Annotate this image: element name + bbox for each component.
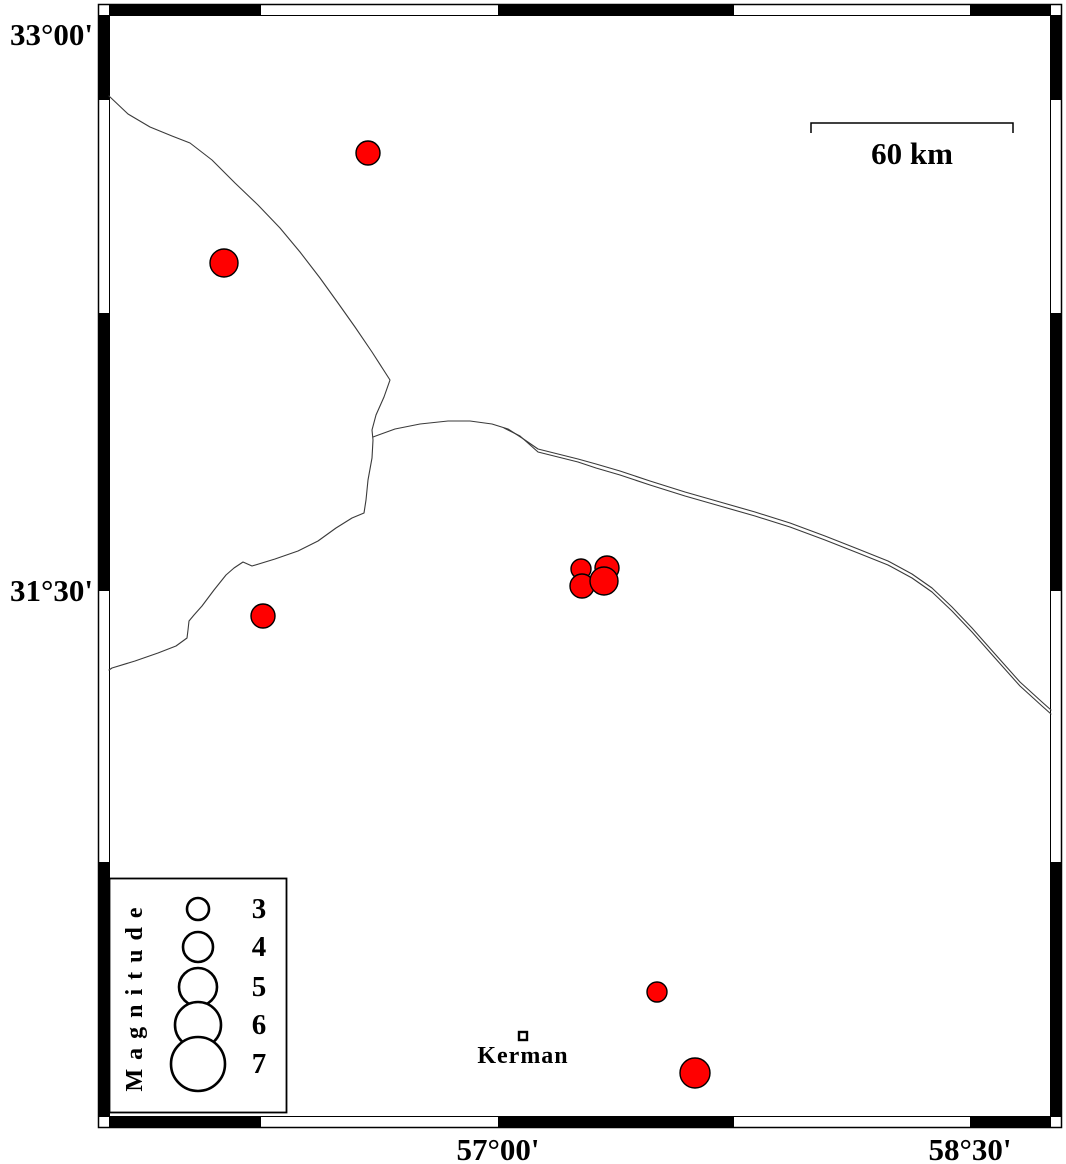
seismicity-map: 33°00' 31°30' 57°00' 58°30' 60 km Kerman… xyxy=(0,0,1066,1164)
scale-bar-label: 60 km xyxy=(812,136,1012,172)
legend-value-3: 3 xyxy=(238,890,280,928)
border-line xyxy=(109,96,390,670)
legend-value-7: 7 xyxy=(238,1045,280,1083)
legend-magnitude-circle xyxy=(171,1037,225,1091)
lat-tick-label-31-30: 31°30' xyxy=(0,570,93,612)
lon-tick-label-58-30: 58°30' xyxy=(890,1129,1050,1164)
legend-magnitude-circle xyxy=(183,932,213,962)
scale-bar xyxy=(811,123,1013,133)
epicenter-marker xyxy=(210,249,238,277)
legend-title: Magnitude xyxy=(122,880,158,1110)
geographic-lines xyxy=(109,96,1051,714)
epicenter-marker xyxy=(251,604,275,628)
fault-line-main xyxy=(373,421,1051,710)
legend-value-4: 4 xyxy=(238,928,280,966)
epicenter-marker xyxy=(647,982,667,1002)
legend-magnitude-circle xyxy=(179,968,217,1006)
map-canvas xyxy=(0,0,1066,1164)
epicenter-marker xyxy=(356,141,380,165)
lat-tick-label-33-00: 33°00' xyxy=(0,14,93,56)
legend-value-5: 5 xyxy=(238,968,280,1006)
city-marker-square xyxy=(519,1032,527,1040)
legend-magnitude-circle xyxy=(187,898,209,920)
epicenter-marker xyxy=(590,567,618,595)
city-label: Kerman xyxy=(448,1043,598,1070)
epicenter-marker xyxy=(680,1058,710,1088)
legend-value-6: 6 xyxy=(238,1006,280,1044)
lon-tick-label-57-00: 57°00' xyxy=(418,1129,578,1164)
